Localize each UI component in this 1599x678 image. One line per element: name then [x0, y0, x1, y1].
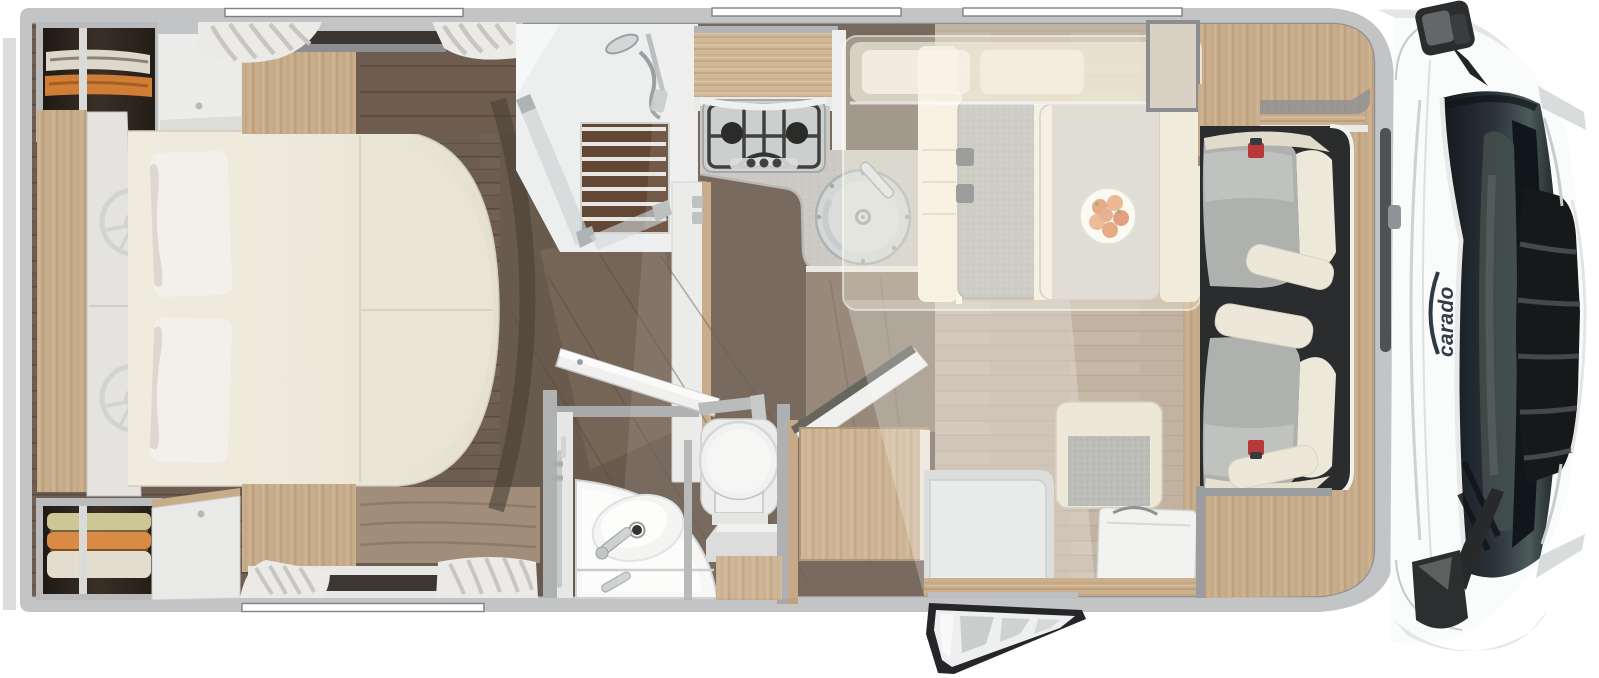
- svg-text:carado: carado: [1435, 286, 1458, 357]
